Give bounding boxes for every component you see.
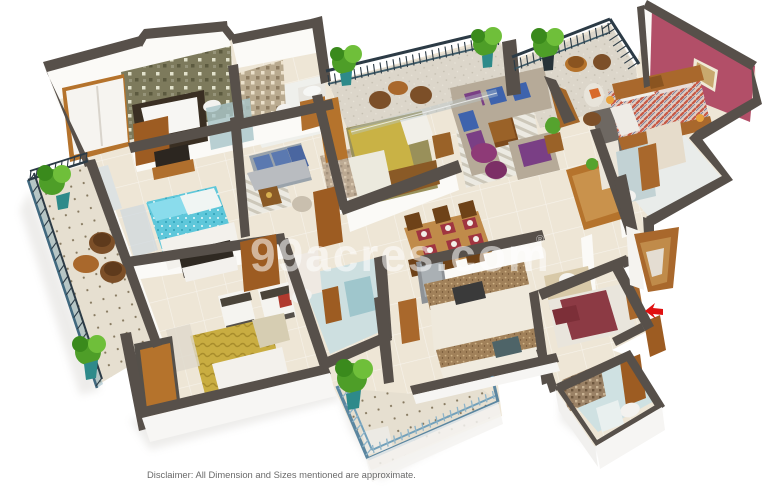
svg-text:99acres.com: 99acres.com — [250, 229, 551, 281]
svg-text:®: ® — [536, 234, 544, 246]
svg-text:Disclaimer: All Dimension and: Disclaimer: All Dimension and Sizes ment… — [147, 469, 416, 480]
